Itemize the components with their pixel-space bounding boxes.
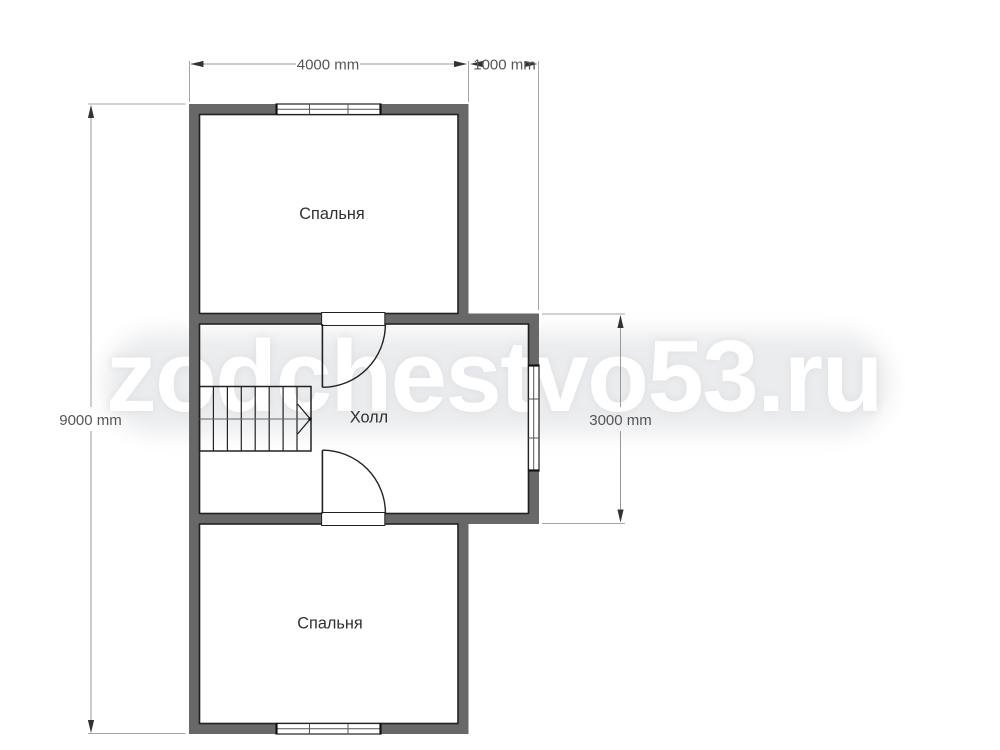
svg-text:4000 mm: 4000 mm xyxy=(297,56,360,73)
svg-text:Спальня: Спальня xyxy=(299,205,364,223)
svg-text:3000 mm: 3000 mm xyxy=(589,412,652,429)
svg-text:1000 mm: 1000 mm xyxy=(473,56,536,73)
svg-text:9000 mm: 9000 mm xyxy=(59,412,122,429)
svg-text:zodchestvo53.ru: zodchestvo53.ru xyxy=(106,321,882,433)
svg-text:Холл: Холл xyxy=(350,409,388,427)
svg-text:Спальня: Спальня xyxy=(297,615,362,633)
